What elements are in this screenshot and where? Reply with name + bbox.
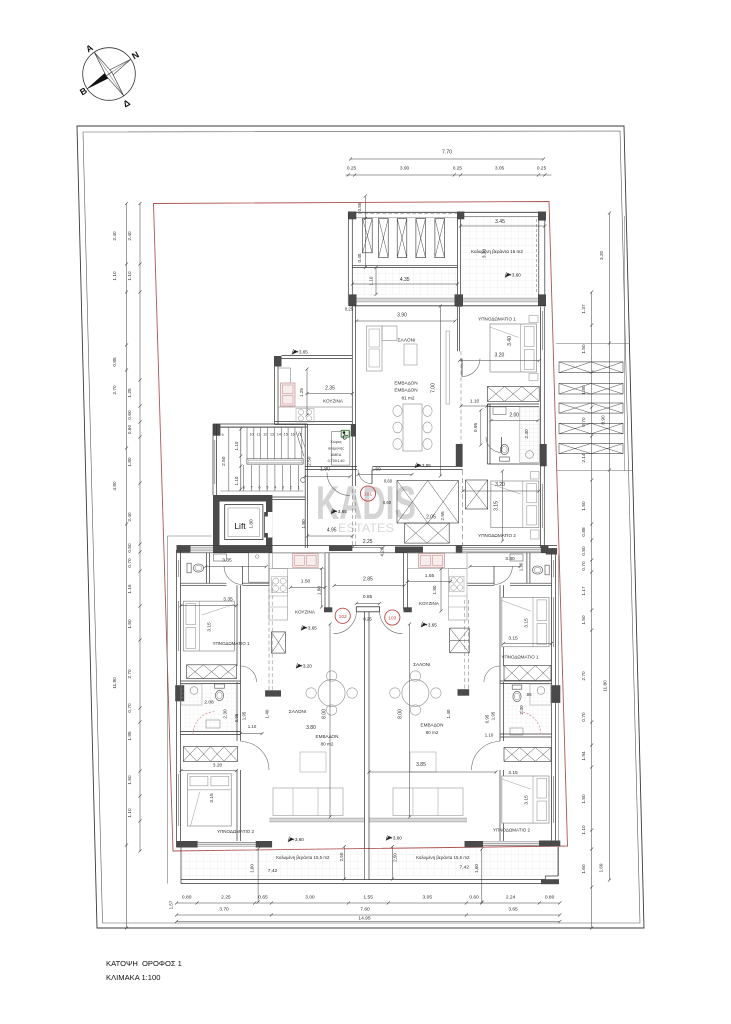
svg-text:ΑΜΕΑ: ΑΜΕΑ — [331, 453, 342, 457]
svg-text:1.16: 1.16 — [127, 584, 132, 594]
svg-text:0.70: 0.70 — [127, 558, 132, 568]
svg-text:3.15: 3.15 — [524, 618, 530, 628]
svg-text:0,60: 0,60 — [383, 500, 392, 505]
svg-text:ΚΛΙΜΑΚΑ 1:100: ΚΛΙΜΑΚΑ 1:100 — [106, 973, 160, 982]
svg-text:1.55: 1.55 — [425, 573, 435, 579]
svg-text:2.85: 2.85 — [363, 576, 373, 582]
svg-text:1.80: 1.80 — [249, 519, 255, 529]
svg-text:0.60: 0.60 — [469, 895, 479, 901]
svg-text:10: 10 — [250, 433, 254, 437]
svg-text:2.30: 2.30 — [222, 709, 228, 719]
svg-text:1.60: 1.60 — [581, 864, 586, 874]
svg-text:1.55: 1.55 — [363, 895, 373, 901]
svg-text:3.45: 3.45 — [495, 219, 505, 225]
svg-text:3.35: 3.35 — [223, 596, 233, 602]
svg-text:2.50: 2.50 — [221, 456, 227, 466]
svg-text:3.85: 3.85 — [416, 762, 426, 768]
svg-text:+3,65: +3,65 — [419, 463, 431, 468]
svg-text:1.10: 1.10 — [234, 441, 239, 450]
svg-text:3.05: 3.05 — [423, 895, 433, 901]
svg-text:7.70: 7.70 — [442, 150, 452, 156]
svg-text:ΕΜΒΑΔΟΝ: ΕΜΒΑΔΟΝ — [316, 734, 339, 739]
svg-text:1.80: 1.80 — [127, 457, 132, 467]
svg-text:4: 4 — [274, 486, 276, 490]
svg-text:2.55: 2.55 — [440, 511, 446, 521]
svg-text:0.70Χ1.40: 0.70Χ1.40 — [328, 459, 345, 463]
svg-text:3.20: 3.20 — [599, 250, 604, 260]
svg-text:1,60: 1,60 — [250, 864, 255, 873]
svg-text:+3,65: +3,65 — [425, 623, 437, 628]
svg-text:2.50: 2.50 — [307, 456, 313, 466]
svg-text:3: 3 — [282, 486, 284, 490]
svg-text:3.20: 3.20 — [482, 249, 488, 259]
svg-text:7: 7 — [251, 486, 253, 490]
svg-text:1.50: 1.50 — [127, 619, 132, 629]
svg-text:+3,65: +3,65 — [296, 350, 308, 355]
svg-text:101: 101 — [364, 492, 372, 498]
svg-text:1.95: 1.95 — [127, 731, 132, 741]
svg-text:ΥΠΝΟΔΩΜΑΤΙΟ 2: ΥΠΝΟΔΩΜΑΤΙΟ 2 — [217, 829, 254, 834]
svg-text:7.00: 7.00 — [431, 383, 437, 393]
svg-text:0.95: 0.95 — [485, 714, 490, 723]
svg-text:1.17: 1.17 — [581, 586, 586, 596]
svg-text:0.25: 0.25 — [347, 166, 357, 172]
svg-text:1.25: 1.25 — [299, 388, 304, 397]
svg-text:0.80: 0.80 — [182, 895, 192, 901]
svg-text:ΣΑΛΟΝΙ: ΣΑΛΟΝΙ — [413, 662, 430, 667]
svg-text:ΚΑΤΟΨΗ ΟΡΟΦΟΣ 1: ΚΑΤΟΨΗ ΟΡΟΦΟΣ 1 — [106, 959, 182, 968]
svg-text:103: 103 — [388, 616, 396, 622]
svg-text:0.85: 0.85 — [363, 594, 373, 600]
svg-text:1.50: 1.50 — [301, 578, 311, 584]
svg-text:+3,60: +3,60 — [390, 836, 402, 841]
svg-text:2.05: 2.05 — [426, 515, 436, 521]
svg-text:1.80: 1.80 — [317, 586, 322, 595]
svg-text:1.10: 1.10 — [470, 399, 480, 405]
svg-text:Καλυμένη βεράντα 15,5 m2: Καλυμένη βεράντα 15,5 m2 — [276, 855, 330, 860]
svg-text:80 m2: 80 m2 — [426, 730, 439, 735]
svg-text:3.90: 3.90 — [400, 166, 410, 172]
svg-text:1.50: 1.50 — [581, 501, 586, 511]
svg-text:Χώρος: Χώρος — [330, 440, 341, 444]
svg-text:3.70: 3.70 — [219, 907, 229, 913]
svg-text:3.05: 3.05 — [495, 166, 505, 172]
svg-text:3.40: 3.40 — [507, 336, 513, 346]
svg-text:6: 6 — [259, 486, 261, 490]
svg-text:2.40: 2.40 — [112, 231, 117, 241]
svg-text:Καλυμένη βεράντα 15,5 m2: Καλυμένη βεράντα 15,5 m2 — [416, 855, 470, 860]
svg-text:1.37: 1.37 — [581, 304, 586, 314]
svg-text:0.45: 0.45 — [357, 253, 362, 262]
svg-text:5: 5 — [266, 486, 268, 490]
svg-text:0.25: 0.25 — [453, 166, 463, 172]
svg-text:2.70: 2.70 — [112, 385, 117, 395]
svg-text:2.00: 2.00 — [509, 413, 519, 419]
svg-text:1.10: 1.10 — [248, 724, 257, 729]
svg-text:ΕΜΒΑΔΟΝ: ΕΜΒΑΔΟΝ — [394, 388, 417, 393]
svg-text:3.00: 3.00 — [305, 895, 315, 901]
svg-text:81 m2: 81 m2 — [401, 396, 414, 401]
svg-text:2.30: 2.30 — [519, 705, 525, 715]
svg-text:0.85: 0.85 — [112, 357, 117, 367]
svg-text:ΚΟΥΖΙΝΑ: ΚΟΥΖΙΝΑ — [295, 609, 316, 614]
svg-text:ΣΑΛΟΝΙ: ΣΑΛΟΝΙ — [398, 338, 416, 344]
svg-text:0.70: 0.70 — [581, 712, 586, 722]
svg-text:2.35: 2.35 — [325, 386, 335, 392]
svg-text:3.20: 3.20 — [495, 353, 505, 359]
svg-text:0.50: 0.50 — [581, 546, 586, 556]
svg-text:1.25: 1.25 — [127, 388, 132, 398]
svg-text:1.20: 1.20 — [519, 562, 524, 571]
svg-text:Lift: Lift — [234, 521, 246, 531]
svg-text:2.25: 2.25 — [221, 895, 231, 901]
svg-text:3.65: 3.65 — [508, 907, 518, 913]
svg-text:3.15: 3.15 — [508, 770, 518, 776]
svg-text:0.55: 0.55 — [357, 202, 362, 211]
svg-text:3.20: 3.20 — [213, 762, 223, 768]
svg-text:1.10: 1.10 — [581, 825, 586, 835]
svg-text:+3,60: +3,60 — [509, 273, 521, 278]
svg-text:2.25: 2.25 — [363, 539, 373, 545]
svg-text:7.60: 7.60 — [360, 907, 370, 913]
svg-text:Καλυμένη βεράντα 16 m2: Καλυμένη βεράντα 16 m2 — [471, 248, 523, 254]
svg-text:1.10: 1.10 — [485, 733, 494, 738]
svg-text:0,60: 0,60 — [384, 479, 393, 484]
svg-text:11.80: 11.80 — [603, 680, 608, 692]
svg-text:ESTATES: ESTATES — [338, 523, 394, 535]
svg-text:1.40: 1.40 — [446, 709, 451, 718]
svg-text:2: 2 — [290, 486, 292, 490]
svg-text:11: 11 — [256, 433, 260, 437]
svg-text:3.15: 3.15 — [209, 793, 215, 803]
svg-text:8.00: 8.00 — [398, 709, 404, 719]
svg-text:3.30: 3.30 — [505, 556, 515, 562]
svg-text:1.57: 1.57 — [169, 900, 174, 909]
svg-text:3.20: 3.20 — [495, 482, 505, 488]
svg-text:0.70: 0.70 — [127, 703, 132, 713]
svg-text:1.80: 1.80 — [301, 519, 307, 529]
svg-text:1.10: 1.10 — [127, 808, 132, 818]
svg-text:.95: .95 — [525, 692, 532, 697]
svg-text:1.10: 1.10 — [234, 476, 239, 485]
svg-text:ΚΟΥΖΙΝΑ: ΚΟΥΖΙΝΑ — [323, 399, 344, 404]
svg-text:3.35: 3.35 — [222, 558, 232, 564]
svg-text:0.60: 0.60 — [127, 425, 132, 435]
svg-text:2.24: 2.24 — [506, 895, 516, 901]
svg-text:2.30: 2.30 — [524, 429, 530, 439]
svg-text:4.95: 4.95 — [327, 528, 337, 534]
svg-text:7,42: 7,42 — [460, 864, 470, 870]
svg-text:4.20: 4.20 — [379, 547, 384, 556]
svg-text:2.08: 2.08 — [204, 700, 214, 706]
svg-text:+3,65: +3,65 — [335, 509, 347, 514]
svg-text:8: 8 — [243, 486, 245, 490]
svg-text:ΥΠΝΟΔΩΜΑΤΙΟ 1: ΥΠΝΟΔΩΜΑΤΙΟ 1 — [502, 655, 539, 660]
svg-text:1.50: 1.50 — [581, 615, 586, 625]
svg-text:0.95: 0.95 — [234, 713, 239, 722]
svg-text:3.15: 3.15 — [508, 636, 518, 642]
svg-text:1.40: 1.40 — [265, 709, 270, 718]
svg-text:11.80: 11.80 — [112, 677, 117, 689]
svg-text:KADIS: KADIS — [316, 476, 416, 529]
svg-text:1: 1 — [298, 486, 300, 490]
svg-text:14.95: 14.95 — [358, 915, 371, 921]
svg-text:1.80: 1.80 — [432, 585, 437, 594]
svg-text:1,60: 1,60 — [474, 864, 479, 873]
svg-text:1.60: 1.60 — [371, 467, 381, 473]
svg-text:16: 16 — [291, 433, 295, 437]
svg-text:1.94: 1.94 — [581, 751, 586, 761]
svg-text:1.50: 1.50 — [581, 344, 586, 354]
svg-text:ΥΠΝΟΔΩΜΑΤΙΟ 2: ΥΠΝΟΔΩΜΑΤΙΟ 2 — [493, 828, 530, 833]
svg-text:17: 17 — [297, 433, 301, 437]
svg-text:2.40: 2.40 — [127, 231, 132, 241]
svg-text:3.80: 3.80 — [306, 725, 316, 731]
svg-text:+3,20: +3,20 — [300, 664, 312, 669]
svg-text:+3,65: +3,65 — [305, 626, 317, 631]
svg-text:0.60: 0.60 — [127, 410, 132, 420]
svg-text:0.65: 0.65 — [258, 895, 268, 901]
svg-text:2.40: 2.40 — [127, 512, 132, 522]
svg-text:4.35: 4.35 — [400, 277, 410, 283]
svg-text:3.15: 3.15 — [206, 622, 212, 632]
svg-text:4.80: 4.80 — [112, 481, 117, 491]
svg-text:0.25: 0.25 — [537, 166, 547, 172]
svg-text:12: 12 — [263, 433, 267, 437]
svg-text:14: 14 — [277, 433, 281, 437]
svg-text:0.70: 0.70 — [581, 561, 586, 571]
svg-text:αναμονής: αναμονής — [328, 447, 344, 451]
svg-text:80 m2: 80 m2 — [321, 742, 334, 747]
svg-text:ΕΜΒΑΔΟΝ: ΕΜΒΑΔΟΝ — [394, 381, 417, 386]
svg-text:1.95: 1.95 — [241, 711, 246, 720]
svg-text:+3,60: +3,60 — [292, 837, 304, 842]
svg-text:2.70: 2.70 — [581, 671, 586, 681]
svg-text:ΣΑΛΟΝΙ: ΣΑΛΟΝΙ — [289, 709, 306, 714]
svg-text:1.50: 1.50 — [127, 775, 132, 785]
svg-text:3.90: 3.90 — [397, 313, 407, 319]
svg-text:2.14: 2.14 — [581, 453, 586, 463]
svg-text:ΕΜΒΑΔΟΝ: ΕΜΒΑΔΟΝ — [421, 723, 444, 728]
svg-text:2,50: 2,50 — [339, 852, 344, 861]
svg-text:3.15: 3.15 — [524, 795, 530, 805]
svg-text:13: 13 — [270, 433, 274, 437]
svg-text:2,50: 2,50 — [393, 853, 398, 862]
svg-text:0.50: 0.50 — [127, 543, 132, 553]
svg-text:0.95: 0.95 — [473, 423, 479, 433]
svg-text:1.60: 1.60 — [599, 863, 604, 872]
svg-text:2.70: 2.70 — [127, 669, 132, 679]
svg-text:3.15: 3.15 — [494, 501, 500, 511]
svg-text:0.80: 0.80 — [545, 895, 555, 901]
svg-text:1.10: 1.10 — [112, 271, 117, 281]
svg-text:0.25: 0.25 — [363, 617, 372, 622]
svg-text:1.10: 1.10 — [369, 276, 374, 285]
svg-text:7,42: 7,42 — [268, 868, 278, 874]
svg-text:1.50: 1.50 — [581, 794, 586, 804]
svg-text:102: 102 — [339, 614, 347, 620]
svg-text:8.00: 8.00 — [321, 709, 327, 719]
svg-text:ΥΠΝΟΔΩΜΑΤΙΟ 1: ΥΠΝΟΔΩΜΑΤΙΟ 1 — [478, 317, 516, 322]
svg-text:15: 15 — [284, 433, 288, 437]
svg-text:1.95: 1.95 — [491, 711, 496, 720]
svg-text:ΚΟΥΖΙΝΑ: ΚΟΥΖΙΝΑ — [419, 601, 440, 606]
svg-text:ΥΠΝΟΔΩΜΑΤΙΟ 1: ΥΠΝΟΔΩΜΑΤΙΟ 1 — [213, 641, 250, 646]
svg-text:1.10: 1.10 — [127, 271, 132, 281]
svg-text:9: 9 — [222, 433, 224, 437]
svg-text:ΥΠΝΟΔΩΜΑΤΙΟ 2: ΥΠΝΟΔΩΜΑΤΙΟ 2 — [478, 533, 516, 538]
svg-text:0.88: 0.88 — [581, 527, 586, 537]
